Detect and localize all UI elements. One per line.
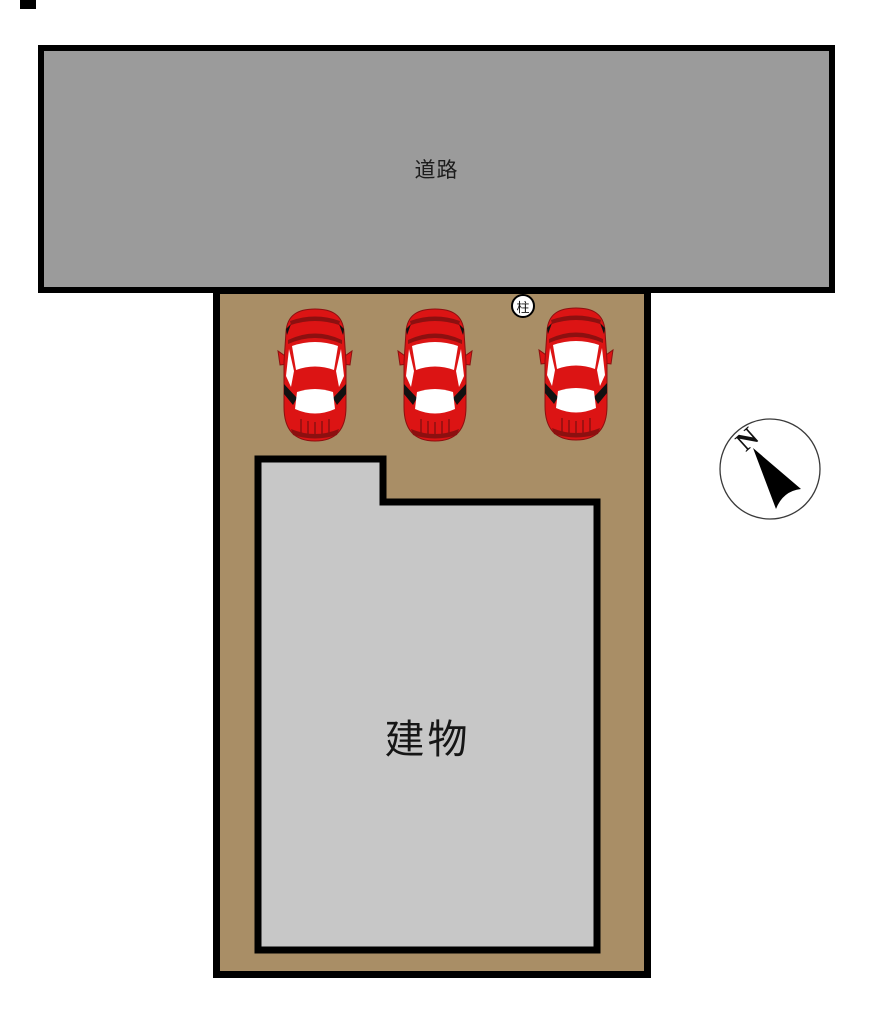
car-top-view-icon	[397, 307, 473, 443]
building-label: 建物	[250, 708, 605, 764]
pillar-label: 柱	[516, 297, 529, 316]
site-plan: 道路	[0, 0, 871, 1024]
corner-mark	[20, 0, 36, 9]
building-area	[250, 451, 605, 958]
compass: N	[717, 416, 823, 522]
road-label: 道路	[415, 154, 459, 184]
car-top-view-icon	[277, 307, 353, 443]
car-top-view-icon	[538, 306, 614, 442]
pillar-marker: 柱	[511, 294, 535, 318]
road-area: 道路	[38, 45, 835, 293]
